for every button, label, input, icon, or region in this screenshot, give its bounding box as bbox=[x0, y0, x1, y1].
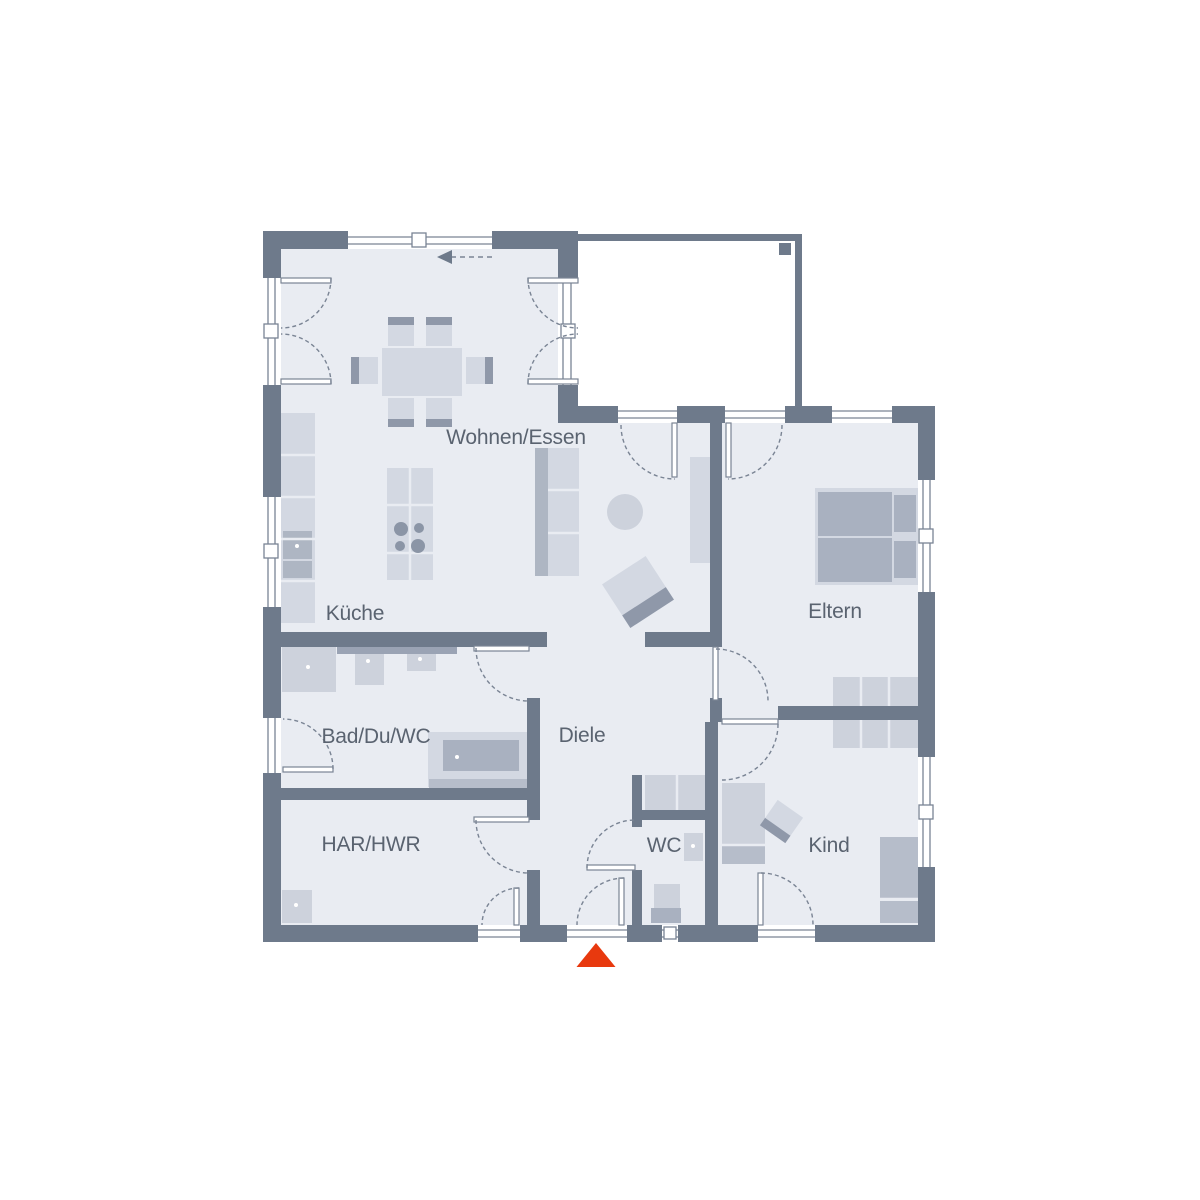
bath-window-door bbox=[263, 718, 281, 773]
wall bbox=[642, 810, 713, 820]
wall bbox=[710, 423, 722, 645]
fixture-dot bbox=[295, 544, 299, 548]
kind-entry-door-leaf bbox=[722, 719, 778, 724]
dining-table bbox=[382, 348, 462, 396]
har-door-leaf bbox=[474, 817, 529, 822]
wall bbox=[263, 385, 281, 497]
room-label-diele: Diele bbox=[559, 724, 606, 747]
living-right-door-leaf bbox=[528, 379, 578, 384]
wall bbox=[815, 925, 935, 942]
dining-chair-back bbox=[388, 419, 414, 427]
eltern-terrace-door bbox=[725, 406, 785, 423]
wall bbox=[527, 698, 540, 820]
fixture-dot bbox=[366, 659, 370, 663]
room-label-kueche: Küche bbox=[326, 602, 385, 625]
wall bbox=[263, 925, 478, 942]
wc-toilet-seat bbox=[654, 884, 680, 909]
wall bbox=[627, 925, 662, 942]
terrace-living-door-leaf bbox=[672, 423, 677, 477]
eltern-pillow bbox=[894, 495, 916, 532]
room-label-bad-du-wc: Bad/Du/WC bbox=[321, 725, 430, 748]
vanity-sink bbox=[407, 654, 436, 671]
living-right-door-leaf bbox=[528, 278, 578, 283]
terrace-pillar bbox=[779, 243, 791, 255]
eltern-pillow bbox=[894, 541, 916, 578]
room-label-kind: Kind bbox=[808, 834, 849, 857]
wall bbox=[263, 607, 281, 718]
bathtub-inner bbox=[443, 740, 519, 771]
floor-plan-drawing: Wohnen/EssenKücheElternBad/Du/WCDieleHAR… bbox=[0, 0, 1200, 1200]
vanity-sink bbox=[355, 654, 384, 685]
wall bbox=[263, 231, 281, 278]
wall bbox=[632, 775, 642, 827]
room-label-har-hwr: HAR/HWR bbox=[322, 833, 421, 856]
kitchen-counter bbox=[281, 413, 315, 623]
kind-right-window-handle bbox=[919, 805, 933, 819]
wall bbox=[918, 592, 935, 757]
top-window-handle bbox=[412, 233, 426, 247]
terrace-area bbox=[578, 241, 795, 406]
eltern-top-window bbox=[832, 406, 892, 423]
terrace-wall bbox=[578, 234, 802, 241]
kitchen-window-handle bbox=[264, 544, 278, 558]
wall bbox=[678, 925, 758, 942]
wall bbox=[632, 870, 642, 925]
terrace-wall bbox=[795, 234, 802, 406]
wall bbox=[527, 870, 540, 925]
dining-chair-back bbox=[485, 357, 493, 384]
fixture-dot bbox=[455, 755, 459, 759]
fixture-dot bbox=[691, 844, 695, 848]
wall bbox=[892, 406, 935, 423]
fixture-dot bbox=[294, 903, 298, 907]
wall bbox=[785, 406, 832, 423]
kind-wardrobe bbox=[880, 837, 918, 899]
cooktop-burner bbox=[414, 523, 424, 533]
cooktop-burner bbox=[394, 522, 408, 536]
bathtub-shelf bbox=[429, 779, 531, 788]
wall bbox=[918, 867, 935, 942]
eltern-wardrobe bbox=[833, 677, 918, 706]
room-label-wohnen-essen: Wohnen/Essen bbox=[446, 426, 586, 449]
kind-bed-foot bbox=[722, 845, 765, 864]
living-left-door-leaf bbox=[281, 278, 331, 283]
wall bbox=[778, 706, 918, 720]
fixture-dot bbox=[306, 665, 310, 669]
wall bbox=[263, 773, 281, 942]
living-left-door-leaf bbox=[281, 379, 331, 384]
dining-chair-back bbox=[426, 317, 452, 325]
entrance-marker bbox=[577, 943, 616, 967]
room-label-wc: WC bbox=[647, 834, 682, 857]
eltern-mattress bbox=[818, 538, 892, 582]
wall bbox=[281, 788, 527, 800]
har-garden-door-leaf bbox=[514, 888, 519, 925]
wall bbox=[281, 632, 547, 647]
room-label-eltern: Eltern bbox=[808, 600, 862, 623]
wall bbox=[710, 698, 722, 722]
wall bbox=[492, 231, 578, 249]
wc-toilet-cistern bbox=[651, 908, 681, 923]
sofa-back bbox=[535, 448, 548, 576]
wall bbox=[705, 722, 718, 925]
eltern-entry-door-leaf bbox=[713, 647, 718, 700]
coffee-table bbox=[607, 494, 643, 530]
kitchen-appliance bbox=[283, 561, 312, 578]
kind-wardrobe-top bbox=[833, 720, 918, 748]
eltern-terrace-door-leaf bbox=[726, 423, 731, 477]
wall bbox=[520, 925, 567, 942]
eltern-right-window-handle bbox=[919, 529, 933, 543]
sideboard bbox=[690, 457, 712, 563]
terrace-living-door bbox=[618, 406, 677, 423]
bath-door-leaf bbox=[474, 646, 529, 651]
cooktop-burner bbox=[411, 539, 425, 553]
kind-wardrobe bbox=[880, 901, 918, 923]
living-left-french-door-handle bbox=[264, 324, 278, 338]
kind-garden-door bbox=[758, 925, 815, 942]
dining-chair-back bbox=[388, 317, 414, 325]
sofa-seats bbox=[548, 448, 579, 576]
cooktop-burner bbox=[395, 541, 405, 551]
wall bbox=[578, 406, 618, 423]
bath-window-door-leaf bbox=[283, 767, 333, 772]
eltern-mattress bbox=[818, 492, 892, 536]
dining-chair-back bbox=[351, 357, 359, 384]
wc-door-leaf bbox=[587, 865, 635, 870]
kind-garden-door-leaf bbox=[758, 873, 763, 925]
entrance-door-window bbox=[567, 925, 627, 942]
har-garden-door bbox=[478, 925, 520, 942]
wc-window-handle bbox=[664, 927, 676, 939]
fixture-dot bbox=[418, 657, 422, 661]
entrance-door-leaf bbox=[619, 878, 624, 925]
floor-plan: Wohnen/EssenKücheElternBad/Du/WCDieleHAR… bbox=[0, 0, 1200, 1200]
wall bbox=[677, 406, 725, 423]
